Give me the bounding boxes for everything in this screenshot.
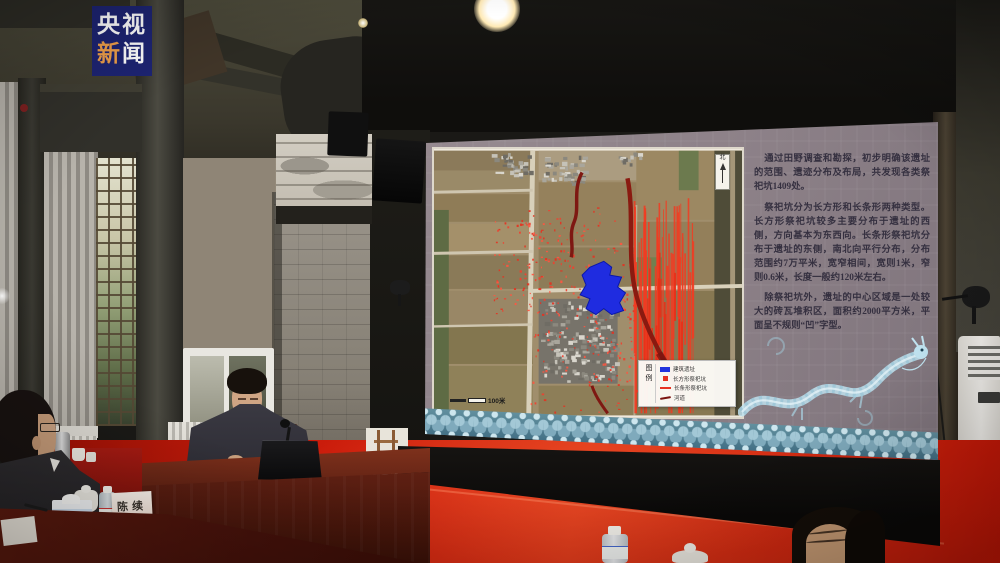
legend-swatch-river bbox=[660, 396, 671, 400]
legend-item: 河道 bbox=[660, 394, 731, 402]
slide-map: 北 100米 图例 建筑遗址 bbox=[432, 147, 744, 419]
name-card-2 bbox=[1, 516, 38, 546]
presenter-eyes bbox=[238, 398, 246, 400]
scale-label: 100米 bbox=[488, 395, 505, 405]
camera-mount bbox=[398, 294, 401, 306]
upper-wall-dark bbox=[362, 0, 962, 132]
wall-upper-tan bbox=[183, 158, 275, 354]
speaker bbox=[372, 138, 426, 203]
scale-segment bbox=[468, 398, 486, 403]
ac-display bbox=[978, 392, 1000, 403]
curtain bbox=[0, 82, 20, 442]
cctv-news-watermark: 央视 新闻 bbox=[92, 6, 152, 76]
plank-wall-beam bbox=[276, 206, 372, 224]
press-conference-photo: 北 100米 图例 建筑遗址 bbox=[0, 0, 1000, 563]
lattice-window bbox=[96, 158, 138, 426]
legend-swatch-building bbox=[660, 367, 670, 372]
glasses bbox=[40, 423, 60, 432]
slide-text: 通过田野调查和勘探，初步明确该遗址的范围、遗迹分布及布局，共发现各类祭祀坑140… bbox=[754, 153, 930, 341]
north-label: 北 bbox=[716, 155, 729, 162]
north-arrowhead bbox=[720, 163, 726, 170]
legend-item: 长条形祭祀坑 bbox=[660, 384, 731, 392]
teacup-lid-knob bbox=[81, 485, 91, 493]
laptop bbox=[258, 440, 322, 481]
legend-label: 长方形祭祀坑 bbox=[673, 375, 706, 383]
map-legend: 图例 建筑遗址 长方形祭祀坑 长条形祭祀坑 bbox=[638, 360, 736, 408]
teacup-lid-2-knob bbox=[684, 543, 696, 553]
legend-items: 建筑遗址 长方形祭祀坑 长条形祭祀坑 河道 bbox=[660, 364, 731, 404]
watermark-line-2: 新闻 bbox=[92, 39, 152, 68]
legend-label: 长条形祭祀坑 bbox=[674, 384, 707, 392]
lintel-beam bbox=[40, 84, 142, 152]
bottle-2-label bbox=[602, 546, 628, 559]
teacup bbox=[86, 452, 96, 462]
legend-item: 长方形祭祀坑 bbox=[660, 375, 731, 383]
dragon-artwork bbox=[738, 314, 938, 434]
camera-mount bbox=[972, 306, 976, 324]
presenter-hair bbox=[227, 368, 267, 394]
watermark-accent-char: 新 bbox=[97, 40, 122, 66]
bottle-2-cap bbox=[608, 526, 621, 535]
watermark-char: 闻 bbox=[122, 40, 147, 66]
slide-paragraph: 通过田野调查和勘探，初步明确该遗址的范围、遗迹分布及布局，共发现各类祭祀坑140… bbox=[754, 153, 930, 195]
legend-item: 建筑遗址 bbox=[660, 365, 731, 373]
scale-bar: 100米 bbox=[450, 395, 505, 405]
audience-man-ear bbox=[32, 436, 41, 450]
security-camera-left bbox=[390, 280, 410, 295]
legend-label: 河道 bbox=[674, 394, 685, 402]
legend-title: 图例 bbox=[643, 364, 656, 404]
spot-light bbox=[358, 18, 368, 28]
tissue-puff bbox=[62, 494, 80, 504]
presentation-screen: 北 100米 图例 建筑遗址 bbox=[424, 120, 938, 462]
teacup bbox=[72, 448, 85, 461]
legend-swatch-strip-pit bbox=[660, 387, 671, 389]
legend-swatch-rect-pit bbox=[663, 376, 668, 381]
ac-vent bbox=[968, 346, 1000, 380]
scale-segment bbox=[450, 399, 466, 402]
speaker bbox=[327, 111, 369, 156]
north-arrow: 北 bbox=[715, 154, 730, 190]
slide-paragraph: 祭祀坑分为长方形和长条形两种类型。长方形祭祀坑较多主要分布于遗址的西侧，方向基本… bbox=[754, 202, 930, 286]
curtain-tie bbox=[20, 104, 28, 112]
bottle-cap bbox=[103, 486, 112, 493]
presenter-eyes bbox=[250, 398, 258, 400]
legend-label: 建筑遗址 bbox=[673, 365, 695, 373]
north-stem bbox=[722, 170, 724, 183]
watermark-line-1: 央视 bbox=[92, 10, 152, 39]
name-placard-text: 陈续 bbox=[117, 497, 148, 515]
